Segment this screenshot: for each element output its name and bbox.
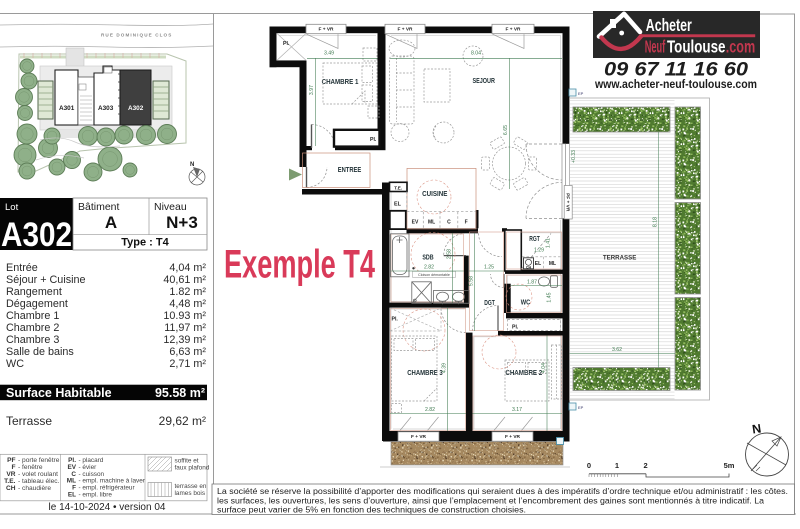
svg-text:5m: 5m [724,461,735,470]
svg-text:Salle de bains: Salle de bains [6,346,74,358]
svg-text:- tableau élec.: - tableau élec. [18,478,60,485]
svg-text:4.39: 4.39 [441,363,447,373]
svg-text:F + VR: F + VR [319,27,334,32]
svg-text:+0.33: +0.33 [571,150,577,163]
svg-text:F + VR: F + VR [506,27,521,32]
svg-text:29,62 m²: 29,62 m² [159,414,206,428]
svg-text:Entrée: Entrée [6,262,38,274]
svg-text:1.82 m²: 1.82 m² [169,286,206,298]
svg-text:Neuf: Neuf [645,37,666,57]
svg-text:Acheter: Acheter [646,15,692,35]
svg-text:5.58: 5.58 [468,276,474,286]
svg-text:3.97: 3.97 [309,85,315,95]
svg-text:- chaudière: - chaudière [18,485,51,492]
svg-text:09 67 11 16 60: 09 67 11 16 60 [604,58,748,80]
svg-text:EP: EP [578,91,584,96]
svg-text:TERRASSE: TERRASSE [603,254,637,261]
svg-text:EL: EL [394,202,402,208]
svg-text:Chambre 3: Chambre 3 [6,334,59,346]
svg-text:1.45: 1.45 [547,292,553,302]
svg-text:ENTREE: ENTREE [338,165,362,174]
svg-text:Toulouse: Toulouse [667,37,726,57]
svg-text:Chambre 1: Chambre 1 [6,310,59,322]
svg-text:Cloison démontable: Cloison démontable [418,273,450,277]
svg-text:Pl.: Pl. [283,41,290,47]
svg-text:12,39 m²: 12,39 m² [163,334,206,346]
svg-text:- fenêtre: - fenêtre [18,464,43,471]
svg-text:F: F [465,220,468,226]
svg-text:Type : T4: Type : T4 [121,237,169,249]
svg-text:EV: EV [412,220,419,226]
svg-text:le 14-10-2024 • version 04: le 14-10-2024 • version 04 [49,502,166,513]
svg-text:les surfaces, les ouvertures,: les surfaces, les ouvertures, les sens d… [217,497,765,506]
svg-text:RUE DOMINIQUE CLOS: RUE DOMINIQUE CLOS [101,33,172,38]
svg-text:1.87: 1.87 [527,279,537,285]
svg-text:A301: A301 [59,105,75,112]
svg-text:WC: WC [521,297,531,306]
svg-text:Niveau: Niveau [154,201,187,213]
svg-text:2: 2 [644,461,648,470]
svg-text:3.62: 3.62 [612,347,622,353]
svg-text:A302: A302 [128,105,144,112]
svg-text:SEJOUR: SEJOUR [472,76,495,85]
svg-text:Pl.: Pl. [370,137,377,143]
svg-text:Séjour + Cuisine: Séjour + Cuisine [6,274,86,286]
svg-text:2.82: 2.82 [425,407,435,413]
svg-text:Surface Habitable: Surface Habitable [6,386,112,400]
svg-text:C: C [447,220,451,226]
svg-text:A302: A302 [1,216,72,254]
svg-text:N: N [190,162,194,168]
svg-text:VR: VR [6,471,15,478]
svg-text:4.04: 4.04 [541,363,547,373]
svg-text:Pl.: Pl. [512,325,519,331]
svg-text:www.acheter-neuf-toulouse.com: www.acheter-neuf-toulouse.com [594,79,757,91]
svg-text:2.82: 2.82 [424,265,434,271]
svg-text:T.E.: T.E. [394,185,402,190]
svg-text:11,97 m²: 11,97 m² [164,322,206,334]
svg-text:F + VR: F + VR [411,434,426,439]
svg-text:soffite et: soffite et [175,458,199,465]
svg-text:1.25: 1.25 [484,265,494,271]
svg-text:CUISINE: CUISINE [422,189,447,198]
svg-text:CH: CH [526,265,532,269]
svg-text:Chambre 2: Chambre 2 [6,322,59,334]
svg-text:DGT: DGT [484,298,495,307]
svg-text:3.49: 3.49 [324,51,334,57]
svg-text:EL: EL [68,492,76,499]
svg-text:terrasse en: terrasse en [175,483,207,490]
svg-text:F + VR: F + VR [505,434,520,439]
svg-text:N+3: N+3 [166,213,198,232]
svg-text:CH: CH [6,485,16,492]
svg-text:8.18: 8.18 [652,217,658,227]
svg-text:surface peut varier de 5% en f: surface peut varier de 5% en fonction de… [217,506,526,515]
svg-text:La société se réserve la possi: La société se réserve la possibilité d’a… [217,487,788,496]
svg-text:CHAMBRE 3: CHAMBRE 3 [407,368,443,377]
svg-text:10.93 m²: 10.93 m² [163,310,206,322]
svg-text:- empl. libre: - empl. libre [79,492,113,499]
svg-text:A: A [105,213,117,232]
svg-text:3.17: 3.17 [512,407,522,413]
svg-text:8.04: 8.04 [471,51,481,57]
svg-text:6,63 m²: 6,63 m² [169,346,206,358]
svg-text:SDB: SDB [422,252,433,261]
svg-text:2,71 m²: 2,71 m² [169,358,206,370]
svg-text:1.29: 1.29 [534,248,544,254]
svg-text:RGT: RGT [529,234,540,243]
svg-text:1.41: 1.41 [546,238,552,248]
svg-text:Lot: Lot [5,202,19,213]
svg-text:EP: EP [578,405,584,410]
svg-text:CHAMBRE 1: CHAMBRE 1 [322,77,359,86]
svg-text:Dégagement: Dégagement [6,298,68,310]
svg-text:CHAMBRE 2: CHAMBRE 2 [505,368,542,377]
svg-text:0: 0 [587,461,591,470]
svg-text:40,61 m²: 40,61 m² [163,274,206,286]
svg-text:6.65: 6.65 [503,125,509,135]
svg-text:EL: EL [535,261,541,267]
svg-text:Pl.: Pl. [392,317,399,323]
svg-text:- porte fenêtre: - porte fenêtre [18,457,60,464]
svg-text:A303: A303 [98,105,114,112]
svg-text:F: F [11,464,15,471]
svg-text:ML: ML [549,261,556,267]
svg-text:2.58: 2.58 [446,249,452,259]
svg-text:PF: PF [7,457,15,464]
svg-text:Rangement: Rangement [6,286,62,298]
svg-text:Bâtiment: Bâtiment [78,201,120,213]
svg-text:F + VR: F + VR [398,27,413,32]
svg-text:WC: WC [6,358,24,370]
svg-text:PF + VR: PF + VR [564,193,570,212]
svg-text:.com: .com [726,37,756,57]
svg-text:4,04 m²: 4,04 m² [169,262,206,274]
svg-text:N: N [751,421,762,436]
svg-text:Terrasse: Terrasse [6,414,52,428]
svg-text:lames bois: lames bois [175,490,206,497]
svg-text:4,48 m²: 4,48 m² [169,298,206,310]
svg-text:ML: ML [428,220,435,226]
svg-text:Exemple T4: Exemple T4 [224,243,376,287]
svg-text:T.E.: T.E. [4,478,16,485]
svg-text:1: 1 [615,461,619,470]
svg-text:- volet roulant: - volet roulant [18,471,58,478]
svg-text:faux plafond: faux plafond [175,465,210,472]
svg-text:95.58 m²: 95.58 m² [155,386,205,400]
